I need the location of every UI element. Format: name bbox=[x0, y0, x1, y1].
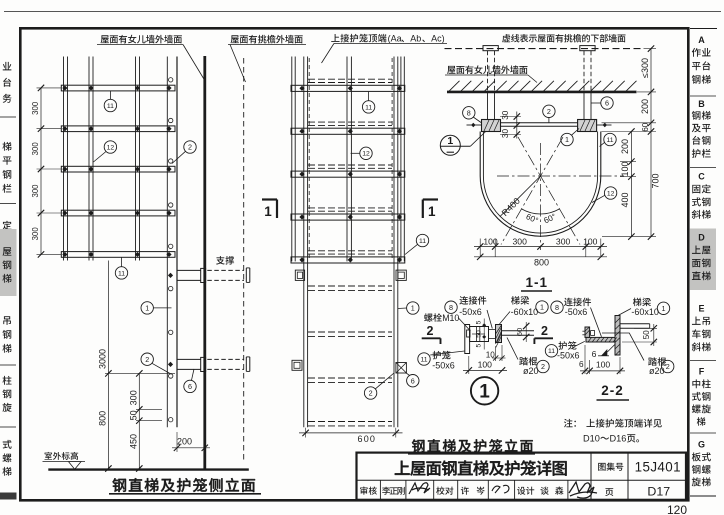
svg-text:100: 100 bbox=[583, 237, 598, 247]
svg-text:11: 11 bbox=[548, 348, 555, 355]
svg-text:2: 2 bbox=[541, 324, 548, 338]
svg-text:C: C bbox=[698, 172, 705, 182]
svg-text:D17: D17 bbox=[647, 485, 670, 499]
svg-text:300: 300 bbox=[31, 184, 40, 198]
svg-text:5: 5 bbox=[476, 320, 483, 324]
svg-text:11: 11 bbox=[420, 356, 427, 363]
svg-text:11: 11 bbox=[107, 103, 114, 110]
svg-text:300: 300 bbox=[556, 237, 571, 247]
svg-text:50: 50 bbox=[642, 330, 651, 339]
svg-text:2: 2 bbox=[369, 389, 373, 398]
svg-text:10: 10 bbox=[486, 350, 496, 359]
svg-text:11: 11 bbox=[365, 104, 372, 111]
svg-text:M10: M10 bbox=[442, 313, 459, 323]
svg-text:8: 8 bbox=[449, 303, 453, 312]
svg-text:2: 2 bbox=[541, 362, 545, 371]
svg-text:1: 1 bbox=[264, 204, 272, 219]
svg-text:1: 1 bbox=[447, 135, 453, 147]
svg-text:300: 300 bbox=[513, 237, 528, 247]
svg-text:60: 60 bbox=[515, 328, 524, 336]
svg-text:2: 2 bbox=[666, 362, 670, 371]
svg-text:R400: R400 bbox=[500, 196, 522, 218]
svg-text:(Aa: (Aa bbox=[388, 34, 402, 44]
svg-text:200: 200 bbox=[620, 139, 630, 154]
svg-text:200: 200 bbox=[640, 99, 650, 114]
svg-text:60: 60 bbox=[641, 122, 650, 132]
svg-text:-50x6: -50x6 bbox=[565, 307, 588, 317]
svg-text:100: 100 bbox=[596, 359, 611, 369]
svg-text:11: 11 bbox=[419, 238, 426, 245]
svg-text:Ac): Ac) bbox=[431, 34, 445, 44]
svg-text:2: 2 bbox=[427, 324, 434, 338]
svg-text:D16: D16 bbox=[610, 434, 627, 444]
svg-text:300: 300 bbox=[31, 101, 40, 115]
svg-text:800: 800 bbox=[534, 257, 549, 267]
svg-text:50: 50 bbox=[476, 330, 483, 338]
svg-text:≤300: ≤300 bbox=[640, 58, 650, 78]
svg-text:30: 30 bbox=[501, 110, 510, 120]
svg-text:12: 12 bbox=[107, 144, 115, 151]
svg-text:2: 2 bbox=[547, 107, 551, 116]
svg-text:50: 50 bbox=[128, 410, 138, 420]
svg-text:600: 600 bbox=[357, 434, 376, 444]
svg-text:A: A bbox=[698, 35, 705, 45]
svg-text:G: G bbox=[698, 440, 705, 450]
svg-text:100: 100 bbox=[483, 237, 498, 247]
svg-text:11: 11 bbox=[118, 270, 125, 277]
svg-text:3000: 3000 bbox=[97, 349, 107, 369]
svg-text:1: 1 bbox=[662, 304, 666, 313]
svg-text:8: 8 bbox=[467, 108, 471, 117]
svg-text:F: F bbox=[699, 367, 705, 377]
svg-text:300: 300 bbox=[31, 142, 40, 156]
svg-text:6: 6 bbox=[411, 376, 415, 385]
svg-text:800: 800 bbox=[97, 411, 107, 426]
svg-text:1: 1 bbox=[479, 382, 490, 403]
svg-text:-60x10: -60x10 bbox=[631, 307, 659, 317]
svg-text:ø20: ø20 bbox=[649, 366, 665, 376]
svg-text:8: 8 bbox=[555, 303, 559, 312]
svg-text:-50x6: -50x6 bbox=[432, 361, 455, 371]
svg-text:6: 6 bbox=[188, 382, 192, 391]
svg-text:1: 1 bbox=[565, 135, 569, 144]
svg-text:6: 6 bbox=[605, 99, 609, 108]
svg-text:2-2: 2-2 bbox=[601, 383, 624, 398]
svg-text:E: E bbox=[698, 304, 704, 314]
svg-text:D: D bbox=[698, 233, 705, 243]
svg-text:400: 400 bbox=[620, 192, 630, 207]
svg-text:30: 30 bbox=[501, 129, 510, 139]
svg-text:1: 1 bbox=[411, 304, 415, 313]
svg-text:300: 300 bbox=[128, 390, 138, 405]
svg-text:1: 1 bbox=[145, 303, 149, 312]
svg-text:200: 200 bbox=[177, 436, 192, 446]
svg-text:D10: D10 bbox=[583, 434, 600, 444]
svg-text:100: 100 bbox=[478, 360, 493, 370]
svg-text:B: B bbox=[698, 99, 705, 109]
svg-text:ø20: ø20 bbox=[523, 366, 539, 376]
svg-text:11: 11 bbox=[606, 137, 613, 144]
svg-text:2: 2 bbox=[188, 143, 192, 152]
svg-text:1: 1 bbox=[540, 303, 544, 312]
svg-text:6: 6 bbox=[579, 360, 584, 369]
svg-text:100: 100 bbox=[620, 161, 630, 176]
svg-text:12: 12 bbox=[607, 190, 615, 197]
svg-text:-50x6: -50x6 bbox=[459, 307, 482, 317]
svg-text:700: 700 bbox=[651, 173, 661, 188]
svg-text:120: 120 bbox=[667, 503, 687, 515]
svg-text:1: 1 bbox=[428, 204, 436, 219]
svg-text:6: 6 bbox=[592, 349, 597, 359]
svg-text:5: 5 bbox=[476, 343, 483, 347]
svg-text:450: 450 bbox=[128, 434, 138, 449]
svg-text:2: 2 bbox=[145, 355, 149, 364]
svg-text:15J401: 15J401 bbox=[635, 460, 681, 475]
svg-text:1-1: 1-1 bbox=[525, 275, 548, 290]
svg-text:Ab: Ab bbox=[410, 34, 421, 44]
svg-text:-60x10: -60x10 bbox=[511, 307, 539, 317]
svg-text:-50x6: -50x6 bbox=[557, 351, 580, 361]
svg-text:300: 300 bbox=[31, 227, 40, 241]
svg-text:12: 12 bbox=[362, 151, 370, 158]
